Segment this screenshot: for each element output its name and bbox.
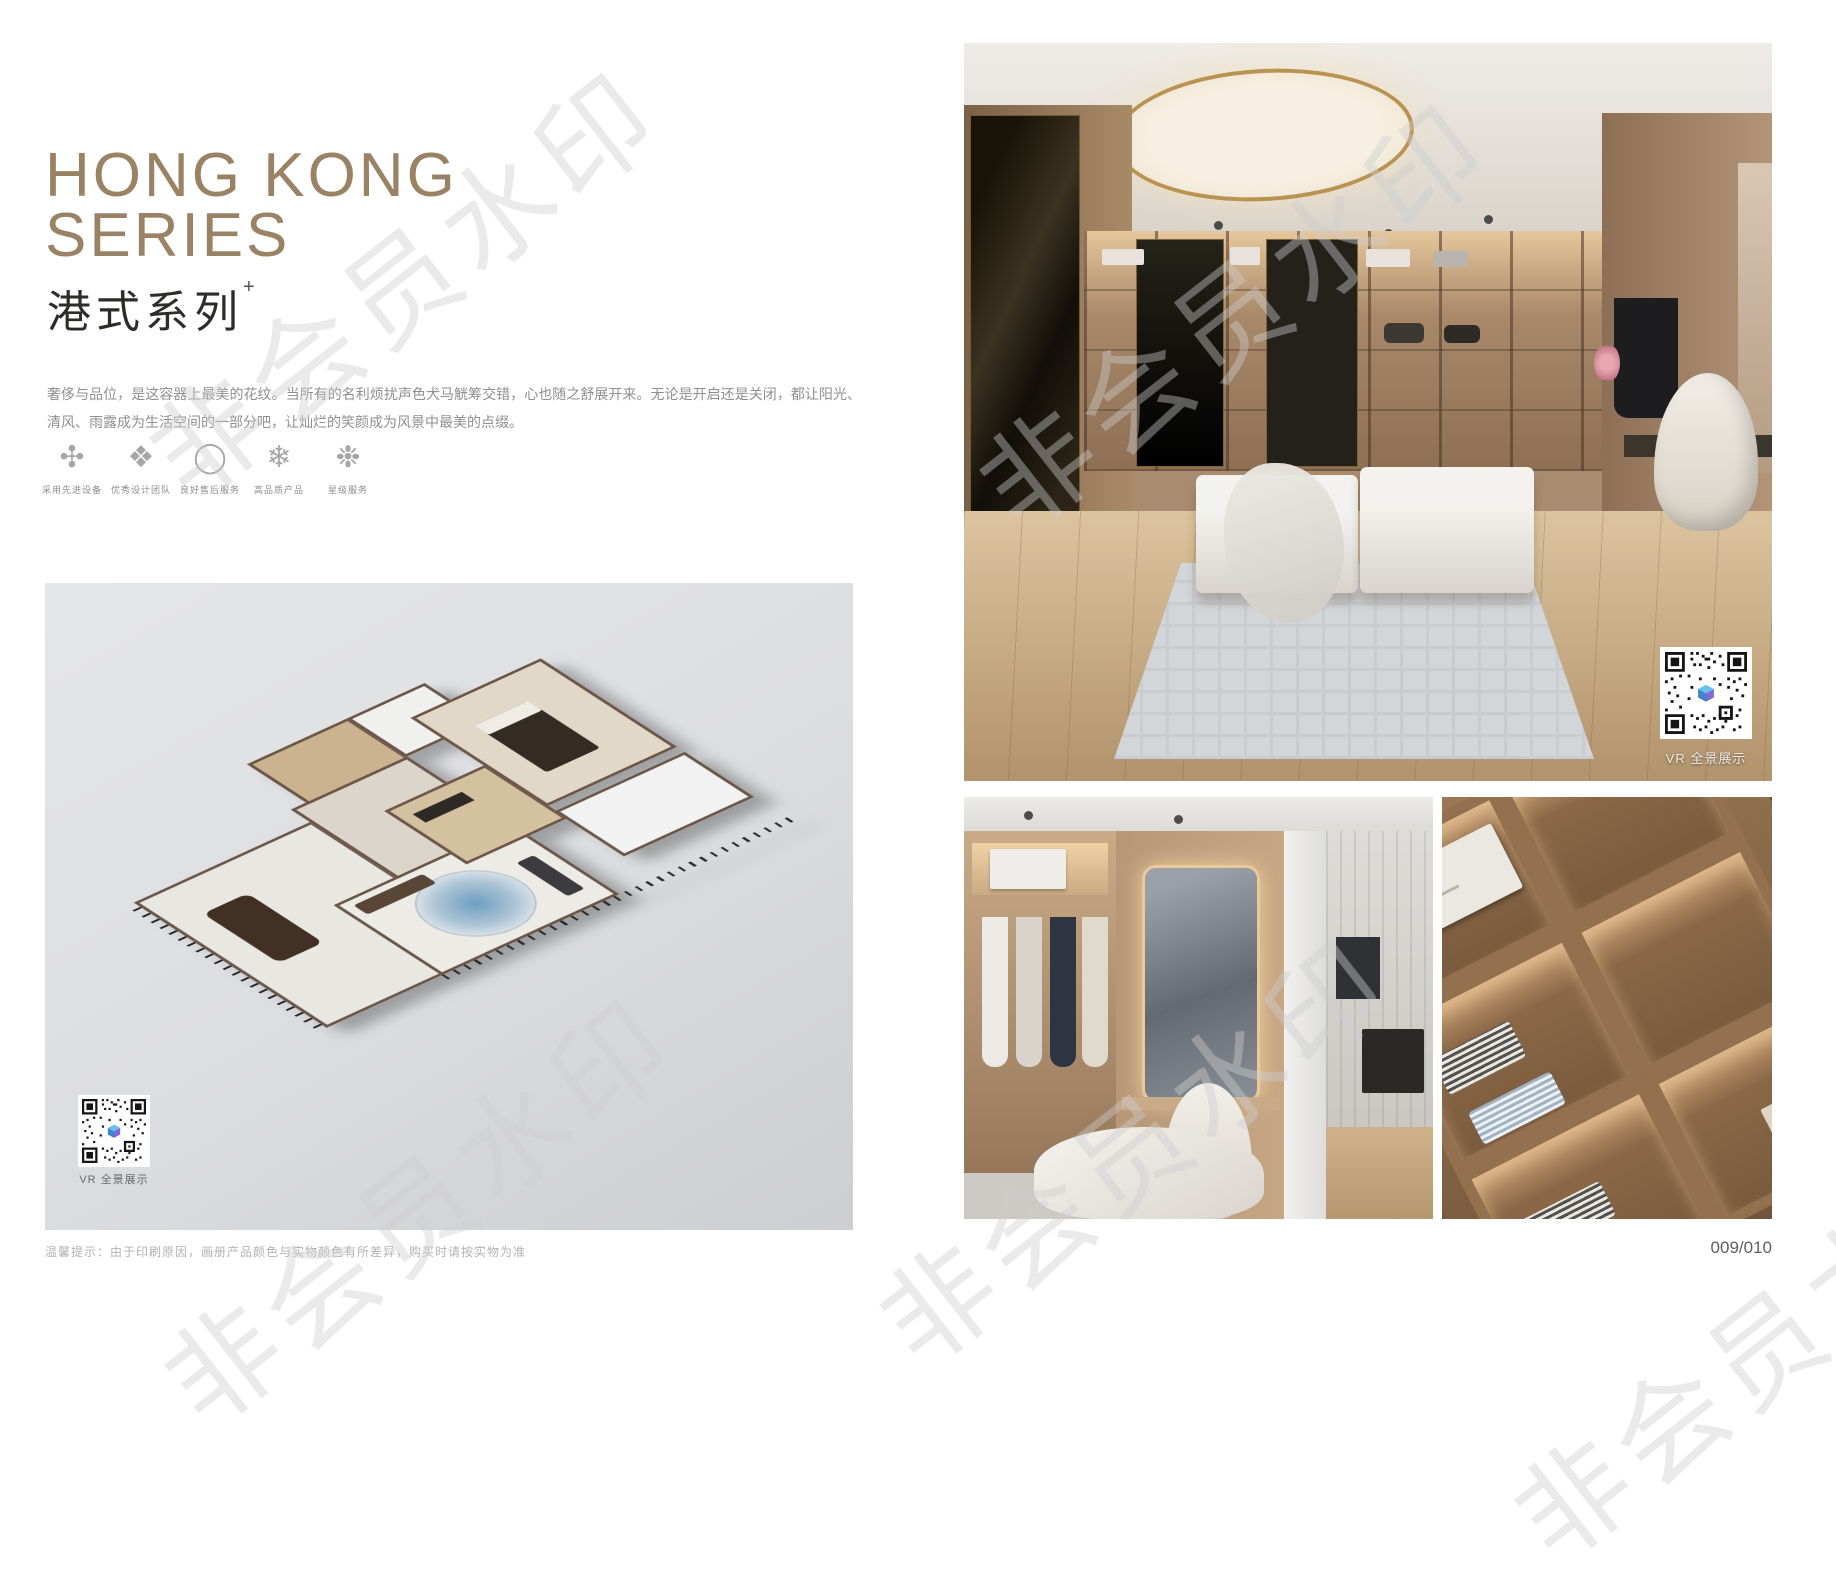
feature-quality-product: ❄ 高品质产品 [249,438,309,496]
series-title-line1: HONG KONG [45,146,458,206]
series-title: HONG KONG SERIES [45,146,458,266]
star-service-icon: ❉ [318,438,378,478]
feature-design-team: ❖ 优秀设计团队 [111,438,171,496]
high-quality-product-icon: ❄ [249,438,309,478]
feature-after-sales: ◯ 良好售后服务 [180,438,240,496]
catalog-page: { "page": { "watermark_text": "非会员水印", "… [0,0,1836,1307]
hanging-jeans [1050,917,1076,1067]
storage-box [990,849,1066,889]
handbag [1444,325,1480,343]
dark-sideboard [1362,1029,1424,1093]
white-blanket [1034,1127,1264,1219]
plus-mark: + [243,276,260,298]
hanging-shirt [982,917,1008,1067]
white-partition [1284,831,1326,1219]
hanging-shirt [1016,917,1042,1067]
series-description: 奢侈与品位，是这容器上最美的花纹。当所有的名利烦扰声色犬马觥筹交错，心也随之舒展… [47,380,861,436]
feature-label: 优秀设计团队 [111,483,171,496]
feature-star-service: ❉ 星级服务 [318,438,378,496]
lit-vanity-mirror [1142,865,1260,1103]
design-team-icon: ❖ [111,438,171,478]
feature-advanced-equipment: ✣ 采用先进设备 [42,438,102,496]
shelf-pillow [1230,247,1260,265]
sub-photo-shelf-closeup [1442,797,1772,1219]
wall-tv [1336,937,1380,999]
hanging-dark-clothes [1614,298,1678,418]
feature-label: 采用先进设备 [42,483,102,496]
series-subtitle-cn: 港式系列+ [47,276,260,340]
smoked-glass-wardrobe [970,115,1080,563]
hallway-wood-floor [1326,1127,1433,1219]
shelf-box [1434,251,1468,267]
feature-label: 高品质产品 [249,483,309,496]
footer-disclaimer: 温馨提示：由于印刷原因，画册产品颜色与实物颜色有所差异，购买时请按实物为准 [45,1243,526,1260]
feature-icon-row: ✣ 采用先进设备 ❖ 优秀设计团队 ◯ 良好售后服务 ❄ 高品质产品 ❉ 星级服… [42,438,378,496]
feature-label: 星级服务 [318,483,378,496]
handbag [1384,323,1424,343]
shelf-pillow [1102,249,1144,265]
advanced-equipment-icon: ✣ [42,438,102,478]
dark-wardrobe-cabinet [1136,239,1224,467]
floorplan-panel: VR 全景展示 [45,583,853,1230]
after-sales-service-icon: ◯ [180,438,240,478]
gallery-vr-qr-code [1660,647,1752,739]
gallery-vr-label: VR 全景展示 [1646,748,1766,767]
series-title-line2: SERIES [45,206,458,266]
page-number: 009/010 [1652,1238,1772,1258]
feature-label: 良好售后服务 [180,483,240,496]
shelf-box [1366,249,1410,267]
diagonal-shelf-grid [1442,797,1772,1219]
hanging-top [1082,917,1108,1067]
floorplan-vr-qr-code [78,1095,150,1167]
main-photo-walk-in-closet: VR 全景展示 [964,43,1772,781]
floorplan-vr-label: VR 全景展示 [58,1171,170,1187]
dark-wardrobe-cabinet [1266,239,1358,467]
sub-photo-dressing-area [964,797,1433,1219]
isometric-floorplan [45,634,786,1028]
white-bench [1360,467,1534,593]
pink-flowers [1594,343,1620,383]
